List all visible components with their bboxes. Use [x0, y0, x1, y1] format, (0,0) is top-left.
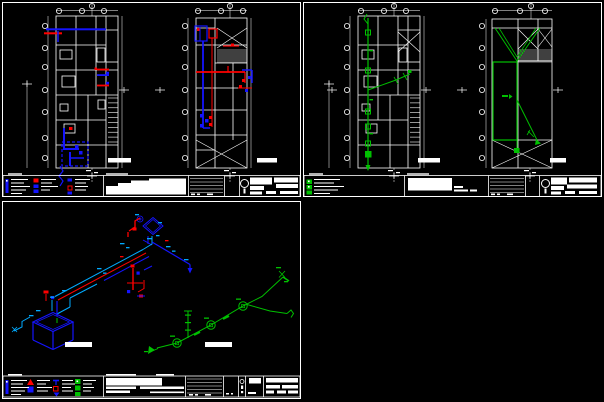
drain-pipes-floor: [365, 151, 372, 158]
floor-plan: [418, 158, 440, 163]
drain-pipes-roof: [502, 95, 508, 97]
title-block: [11, 394, 21, 395]
floor-plan-grid-bubble: [42, 155, 47, 160]
water-isometric: [135, 214, 139, 215]
title-block: [545, 189, 547, 194]
water-isometric: [29, 315, 34, 316]
sheet-hydraulic-plans[interactable]: [3, 3, 301, 197]
water-pipes-floor: [95, 68, 98, 71]
title-block: [241, 180, 249, 188]
floor-plan-grid-bubble: [344, 135, 349, 140]
title-block: [266, 385, 280, 389]
water-pipes-roof: [239, 85, 242, 88]
title-block: [106, 387, 136, 390]
roof-plan-grid-bubble: [517, 8, 522, 13]
floor-plan-grid-bubble: [42, 64, 47, 69]
floor-plan: [60, 50, 72, 59]
drain-pipes-floor: [408, 70, 412, 73]
floor-plan: [108, 158, 131, 163]
water-isometric: [147, 238, 152, 239]
title-block: [68, 186, 72, 190]
roof-plan-grid-bubble: [479, 155, 484, 160]
roof-plan-grid-bubble: [182, 64, 187, 69]
water-pipes-floor: [106, 82, 109, 85]
drain-isometric: [205, 342, 232, 347]
water-pipes-floor: [79, 151, 83, 155]
drain-pipes-floor: [368, 74, 410, 90]
title-block: [75, 190, 86, 191]
drain-pipes-floor: [370, 133, 374, 134]
water-isometric: [37, 315, 70, 330]
title-block: [244, 189, 246, 194]
roof-plan-grid-bubble: [542, 8, 547, 13]
drain-pipes-roof: [493, 62, 517, 140]
water-isometric: [55, 250, 143, 297]
floor-plan-grid-bubble: [381, 8, 386, 13]
floor-plan-grid-bubble: [42, 87, 47, 92]
title-block: [34, 190, 39, 194]
title-block: [54, 387, 59, 392]
drain-isometric: [287, 310, 294, 318]
title-block: [250, 192, 262, 195]
title-block: [11, 183, 24, 184]
drain-isometric: [223, 316, 229, 319]
title-block: [231, 393, 233, 395]
floor-plan-grid-bubble: [344, 45, 349, 50]
roof-plan-grid-bubble: [479, 45, 484, 50]
drain-pipes-floor: [370, 50, 374, 51]
roof-plan-grid-bubble: [240, 8, 245, 13]
water-isometric: [65, 342, 92, 347]
water-pipes-floor: [46, 28, 106, 30]
sheet-isometrics[interactable]: [3, 202, 301, 399]
title-block: [6, 381, 8, 383]
title-block: [106, 173, 128, 174]
title-block: [106, 374, 136, 375]
drain-isometric: [236, 299, 241, 300]
title-block: [507, 194, 513, 196]
water-isometric: [14, 317, 30, 331]
title-block: [309, 173, 323, 174]
water-isometric: [133, 228, 137, 231]
title-block: [62, 391, 73, 392]
title-block: [11, 193, 22, 194]
title-block: [197, 194, 200, 196]
water-pipes-roof: [200, 114, 204, 118]
sheet-hydraulic-plans-water-pipes-floor: [44, 28, 109, 186]
title-block: [314, 186, 344, 187]
drain-pipes-roof: [495, 28, 517, 61]
title-block: [491, 194, 495, 196]
floor-plan-grid-bubble: [42, 23, 47, 28]
sheet-hydraulic-plans-water-pipes-roof: [195, 26, 252, 128]
drain-pipes-roof: [499, 28, 517, 57]
water-isometric: [131, 265, 135, 268]
sheet-sanitary-plans-title-block: [304, 173, 601, 196]
title-block: [83, 387, 94, 388]
title-block: [68, 192, 73, 195]
title-block: [150, 392, 184, 394]
drain-isometric: [247, 305, 287, 314]
drain-isometric: [204, 318, 209, 319]
title-block: [11, 380, 27, 381]
title-block: [226, 393, 229, 395]
title-block: [37, 387, 52, 388]
floor-plan: [60, 104, 68, 111]
title-block: [454, 186, 463, 188]
roof-plan-grid-bubble: [479, 87, 484, 92]
floor-plan-grid-bubble: [344, 109, 349, 114]
floor-plan: [388, 170, 393, 171]
water-pipes-floor: [106, 72, 109, 75]
title-block: [156, 374, 174, 375]
water-isometric: [137, 272, 140, 275]
water-isometric: [156, 235, 160, 236]
floor-plan-grid-bubble: [42, 45, 47, 50]
title-block: [68, 179, 73, 182]
sheet-isometrics-water-isometric: [12, 214, 193, 350]
sheet-frame: [3, 3, 301, 197]
water-isometric: [152, 242, 190, 265]
sheet-sanitary-plans-roof-plan: [479, 3, 566, 182]
water-pipes-floor: [69, 127, 73, 130]
title-block: [567, 185, 597, 189]
sheet-sanitary-plans[interactable]: [304, 3, 602, 197]
water-isometric: [62, 290, 67, 291]
roof-plan-grid-bubble: [479, 64, 484, 69]
sheet-isometrics-drain-isometric: [144, 267, 294, 354]
water-isometric: [103, 273, 107, 274]
floor-plan: [62, 76, 75, 87]
title-block: [11, 391, 25, 392]
title-block: [37, 380, 50, 381]
title-block: [542, 180, 550, 188]
title-block: [314, 190, 338, 191]
water-pipes-floor: [97, 85, 109, 87]
floor-plan: [396, 172, 400, 173]
water-pipes-roof: [205, 119, 209, 123]
water-isometric: [188, 268, 193, 274]
water-isometric: [126, 247, 130, 248]
water-isometric: [158, 222, 162, 223]
cad-drawing-canvas[interactable]: [0, 0, 604, 402]
floor-plan-grid-bubble: [56, 8, 61, 13]
roof-plan-grid-bubble: [479, 109, 484, 114]
floor-plan: [86, 170, 91, 171]
title-block: [189, 394, 193, 396]
floor-plan-grid-bubble: [42, 109, 47, 114]
water-isometric: [138, 280, 144, 292]
water-pipes-roof: [231, 44, 234, 47]
drain-isometric: [185, 315, 191, 316]
title-block: [569, 178, 597, 183]
title-block: [308, 181, 310, 183]
sheet-hydraulic-plans-sheet-frame: [3, 3, 301, 197]
roof-plan: [532, 172, 536, 173]
title-block: [497, 194, 500, 196]
roof-plan-grid-bubble: [182, 23, 187, 28]
sheet-frame: [304, 3, 602, 197]
roof-plan: [524, 170, 529, 171]
water-isometric: [50, 297, 55, 298]
water-isometric: [33, 340, 53, 350]
sheet-sanitary-plans-sheet-frame: [304, 3, 602, 197]
roof-plan-grid-bubble: [479, 23, 484, 28]
water-isometric: [97, 268, 102, 269]
water-isometric: [120, 256, 124, 257]
title-block: [41, 179, 56, 180]
water-isometric: [36, 310, 41, 311]
drain-isometric: [170, 336, 175, 337]
drain-isometric: [185, 322, 191, 323]
title-block: [6, 180, 8, 182]
title-block: [27, 379, 34, 385]
water-isometric: [184, 259, 189, 260]
title-block: [241, 391, 243, 393]
title-block: [266, 191, 276, 194]
title-block: [207, 194, 213, 196]
title-block: [62, 387, 71, 388]
title-block: [83, 384, 92, 385]
water-isometric: [44, 291, 49, 294]
drain-isometric: [284, 281, 288, 282]
sheet-hydraulic-plans-title-block: [3, 173, 300, 196]
title-block: [250, 186, 264, 190]
title-block: [266, 391, 274, 394]
floor-plan: [94, 172, 98, 173]
title-block: [454, 190, 468, 192]
water-pipes-roof: [209, 29, 217, 38]
drain-pipes-roof: [514, 148, 520, 153]
title-block: [195, 394, 198, 396]
title-block: [250, 178, 272, 185]
water-isometric: [165, 240, 169, 241]
drain-isometric: [283, 277, 289, 281]
water-pipes-roof: [209, 116, 212, 119]
sheet-hydraulic-plans-roof-plan: [182, 3, 277, 182]
title-block: [314, 183, 334, 184]
title-block: [54, 393, 60, 397]
title-block: [248, 392, 256, 394]
water-isometric: [33, 313, 73, 332]
title-block: [314, 193, 330, 194]
roof-plan-grid-bubble: [182, 109, 187, 114]
floor-plan-grid-bubble: [344, 155, 349, 160]
roof-plan: [232, 172, 236, 173]
roof-plan-grid-bubble: [492, 8, 497, 13]
title-block: [37, 391, 48, 392]
floor-plan-grid-bubble: [344, 23, 349, 28]
title-block: [41, 186, 58, 187]
title-block: [407, 173, 429, 174]
title-block: [551, 178, 567, 185]
title-block: [37, 384, 46, 385]
drain-pipes-roof: [517, 28, 536, 57]
title-block: [75, 186, 88, 187]
floor-plan-grid-bubble: [344, 64, 349, 69]
drain-isometric: [144, 351, 148, 352]
roof-plan-grid-bubble: [479, 135, 484, 140]
title-block: [11, 186, 30, 187]
title-block: [551, 192, 561, 195]
title-block: [579, 191, 597, 194]
title-block: [11, 190, 26, 191]
drain-pipes-roof: [517, 100, 537, 140]
water-isometric: [172, 251, 176, 252]
title-block: [83, 391, 91, 392]
water-isometric: [104, 257, 149, 281]
sheet-sanitary-plans-floor-plan: [324, 3, 467, 182]
water-pipes-floor: [59, 166, 63, 186]
title-block: [140, 387, 184, 390]
roof-plan-grid-bubble: [182, 45, 187, 50]
drain-pipes-roof: [509, 94, 513, 99]
drain-isometric: [194, 332, 200, 335]
floor-plan: [364, 76, 377, 87]
title-block: [41, 183, 52, 184]
floor-plan-grid-bubble: [79, 8, 84, 13]
water-isometric: [144, 266, 152, 270]
title-block: [62, 384, 75, 385]
floor-plan-grid-bubble: [344, 87, 349, 92]
title-block: [106, 378, 162, 386]
title-block: [75, 183, 86, 184]
water-pipes-roof: [242, 79, 245, 82]
title-block: [83, 380, 96, 381]
water-isometric: [57, 307, 70, 314]
title-block: [75, 179, 90, 180]
floor-plan: [97, 48, 105, 62]
water-pipes-roof: [248, 76, 251, 79]
title-block: [41, 190, 50, 191]
title-block: [11, 384, 23, 385]
sheet-sanitary-plans-drain-pipes-roof: [493, 28, 541, 153]
title-block: [280, 191, 298, 194]
title-block: [62, 380, 73, 381]
water-pipes-floor: [97, 74, 109, 76]
water-pipes-floor: [97, 69, 109, 71]
title-block: [77, 381, 79, 383]
water-pipes-floor: [75, 145, 79, 149]
water-isometric: [127, 290, 130, 293]
title-block: [277, 391, 286, 394]
water-pipes-roof: [200, 124, 204, 128]
title-block: [34, 185, 39, 189]
floor-plan-grid-bubble: [403, 8, 408, 13]
roof-plan-grid-bubble: [182, 87, 187, 92]
title-block: [470, 190, 477, 192]
title-block: [106, 179, 186, 195]
roof-plan-grid-bubble: [182, 155, 187, 160]
roof-plan-grid-bubble: [218, 8, 223, 13]
title-block: [307, 191, 313, 195]
title-block: [11, 387, 29, 388]
title-block: [8, 173, 22, 174]
title-block: [282, 385, 298, 389]
title-block: [240, 380, 244, 384]
title-block: [241, 386, 243, 390]
title-block: [288, 391, 298, 394]
water-isometric: [166, 246, 171, 247]
water-pipes-floor: [44, 32, 62, 34]
title-block: [75, 392, 81, 396]
roof-plan: [224, 170, 229, 171]
title-block: [11, 179, 28, 180]
floor-plan-grid-bubble: [358, 8, 363, 13]
title-block: [34, 179, 39, 183]
roof-plan-grid-bubble: [182, 135, 187, 140]
sheet-isometrics-title-block: [3, 374, 300, 397]
water-pipes-roof: [209, 123, 212, 126]
floor-plan-grid-bubble: [101, 8, 106, 13]
title-block: [274, 178, 298, 183]
title-block: [551, 186, 564, 190]
title-block: [266, 378, 298, 383]
drain-isometric: [185, 330, 191, 331]
title-block: [314, 179, 340, 180]
title-block: [8, 374, 22, 375]
roof-plan: [492, 19, 552, 168]
floor-plan-grid-bubble: [42, 135, 47, 140]
drain-isometric: [276, 267, 281, 268]
title-block: [191, 194, 195, 196]
title-block: [308, 186, 310, 188]
roof-plan: [550, 158, 566, 163]
drain-isometric: [157, 277, 283, 348]
title-block: [249, 378, 261, 384]
title-block: [408, 178, 452, 191]
title-block: [276, 184, 298, 188]
water-isometric: [120, 243, 125, 244]
water-pipes-roof: [245, 89, 248, 92]
drain-pipes-floor: [370, 99, 374, 100]
title-block: [106, 391, 130, 394]
cad-layout-viewport[interactable]: [0, 0, 604, 402]
title-block: [565, 191, 575, 194]
floor-plan: [98, 100, 105, 109]
title-block: [205, 394, 211, 396]
title-block: [75, 386, 81, 391]
roof-plan: [257, 158, 277, 163]
roof-plan-grid-bubble: [195, 8, 200, 13]
